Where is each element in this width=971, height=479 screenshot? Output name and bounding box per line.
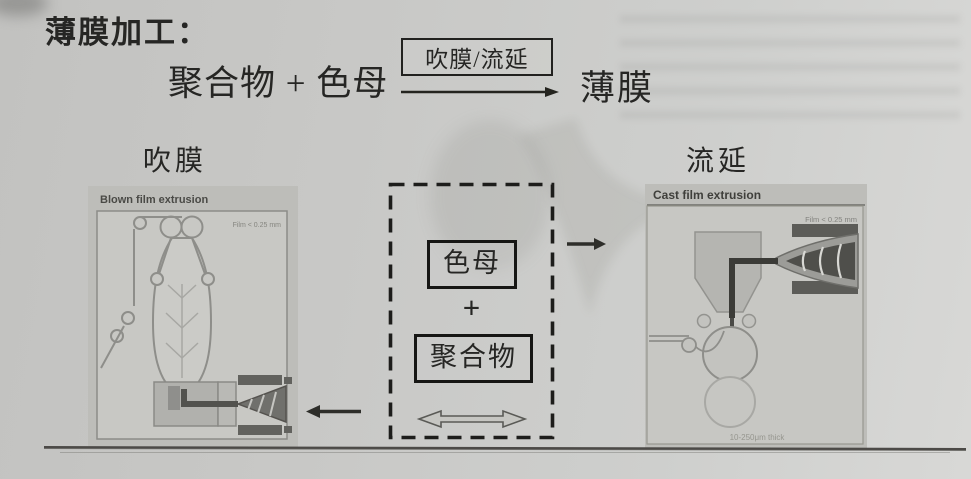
chill-roll [705, 377, 755, 427]
stabilizer-roller [151, 273, 163, 285]
cast-thickness-note: 10-250μm thick [730, 433, 786, 442]
cast-caption: Cast film extrusion [653, 188, 761, 202]
page-title: 薄膜加工： [45, 7, 210, 52]
plus-sign: + [388, 290, 555, 326]
blown-film-note: Film < 0.25 mm [233, 222, 282, 229]
bleedthrough-texture [620, 0, 960, 135]
bottom-rule-shadow [60, 452, 950, 453]
blown-extruder [154, 375, 292, 435]
scanned-page: 薄膜加工： 聚合物 + 色母 吹膜/流延 薄膜 吹膜 流延 Blown film… [0, 0, 971, 479]
die-channel [168, 386, 180, 410]
equation-condition-box: 吹膜/流延 [401, 38, 553, 76]
masterbatch-label: 色母 [443, 248, 501, 278]
right-arrow-icon [566, 236, 606, 252]
cast-film-note: Film < 0.25 mm [805, 215, 857, 224]
masterbatch-box: 色母 [427, 240, 517, 289]
mixing-dashed-box: 色母 + 聚合物 [388, 182, 555, 440]
cast-film-label: 流延 [686, 139, 750, 179]
left-arrow-icon [306, 403, 362, 420]
nip-roller [161, 217, 182, 238]
double-arrow-icon [416, 409, 528, 429]
guide-roller [122, 312, 134, 324]
polymer-box: 聚合物 [414, 334, 533, 383]
blown-film-extrusion-figure: Blown film extrusion Film < 0.25 mm [88, 186, 298, 448]
reaction-arrow-icon [399, 84, 561, 100]
die-lip-roller [743, 315, 756, 328]
equation-reactants: 聚合物 + 色母 [168, 55, 388, 106]
scan-smudge [0, 0, 48, 16]
equation-product: 薄膜 [580, 60, 654, 111]
chill-roll [703, 327, 757, 381]
cast-film-extrusion-figure: Cast film extrusion Film < 0.25 mm [645, 184, 867, 450]
guide-roller [682, 338, 696, 352]
stabilizer-roller [202, 273, 214, 285]
die-lip-roller [698, 315, 711, 328]
polymer-label: 聚合物 [430, 342, 517, 372]
bottom-rule [44, 446, 966, 451]
nip-roller [182, 217, 203, 238]
blown-film-label: 吹膜 [143, 139, 207, 179]
blown-caption: Blown film extrusion [100, 194, 208, 206]
guide-roller [134, 217, 146, 229]
equation-condition-label: 吹膜/流延 [425, 40, 528, 74]
